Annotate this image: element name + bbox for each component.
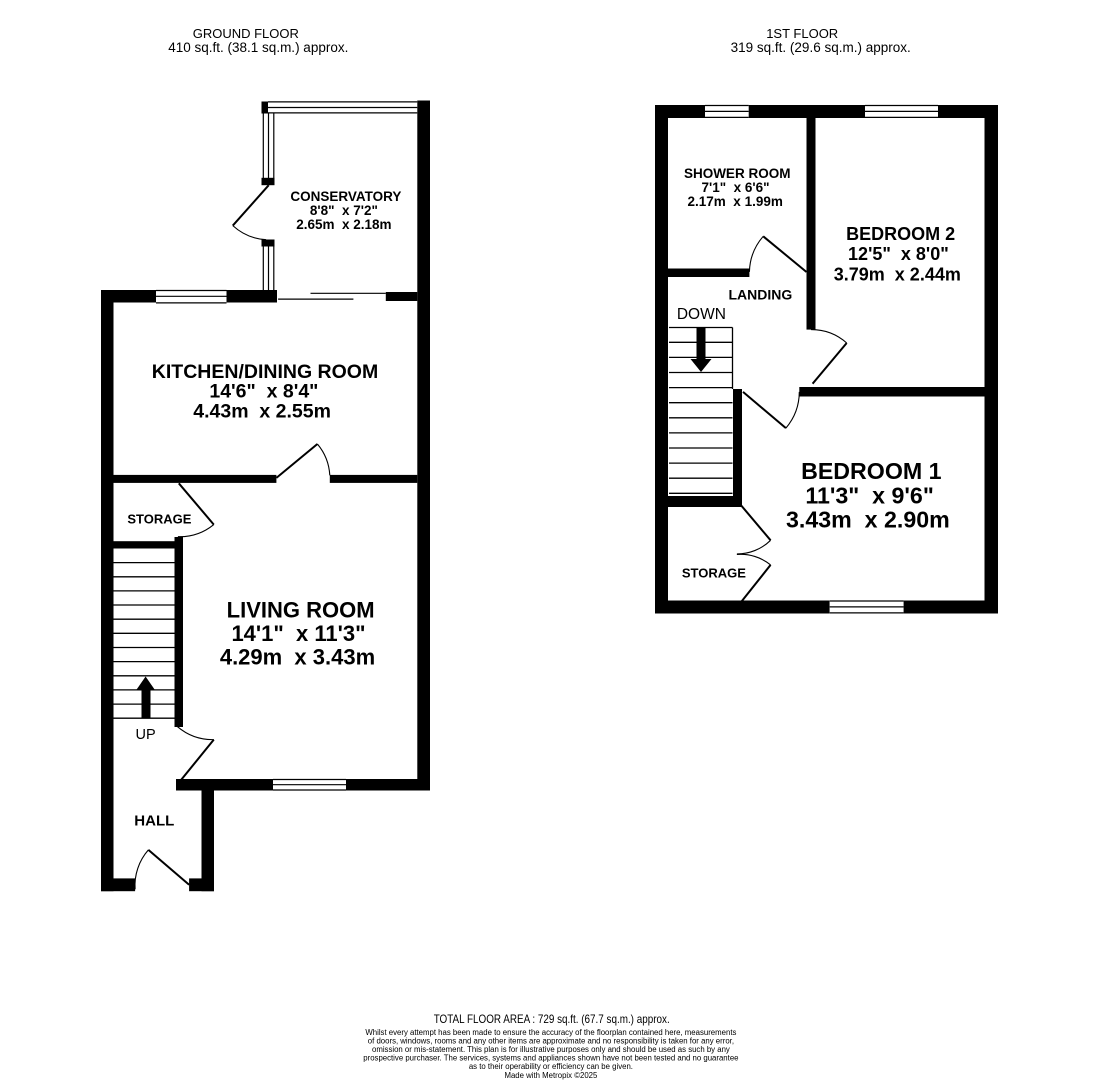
svg-text:2.17m x 1.99m: 2.17m x 1.99m — [688, 194, 783, 209]
svg-text:2.65m x 2.18m: 2.65m x 2.18m — [296, 217, 391, 232]
svg-text:12'5" x 8'0": 12'5" x 8'0" — [848, 244, 949, 264]
svg-text:410 sq.ft. (38.1 sq.m.) approx: 410 sq.ft. (38.1 sq.m.) approx. — [168, 40, 348, 55]
svg-text:TOTAL FLOOR AREA : 729 sq.ft.: TOTAL FLOOR AREA : 729 sq.ft. (67.7 sq.m… — [434, 1012, 670, 1026]
svg-text:BEDROOM 1: BEDROOM 1 — [801, 458, 942, 484]
svg-text:LIVING ROOM: LIVING ROOM — [227, 598, 375, 623]
svg-text:4.29m x 3.43m: 4.29m x 3.43m — [220, 645, 375, 670]
svg-text:HALL: HALL — [134, 813, 174, 830]
svg-text:8'8" x 7'2": 8'8" x 7'2" — [310, 203, 378, 218]
svg-text:11'3" x 9'6": 11'3" x 9'6" — [805, 482, 933, 508]
svg-text:Made with Metropix ©2025: Made with Metropix ©2025 — [504, 1071, 598, 1080]
svg-text:STORAGE: STORAGE — [127, 512, 191, 527]
svg-text:1ST FLOOR: 1ST FLOOR — [766, 26, 838, 41]
svg-text:3.43m x 2.90m: 3.43m x 2.90m — [786, 507, 950, 533]
svg-text:4.43m x 2.55m: 4.43m x 2.55m — [193, 401, 331, 423]
svg-text:3.79m x 2.44m: 3.79m x 2.44m — [834, 265, 961, 285]
svg-text:UP: UP — [136, 727, 156, 743]
svg-text:14'1" x 11'3": 14'1" x 11'3" — [231, 621, 365, 646]
svg-text:7'1" x 6'6": 7'1" x 6'6" — [701, 180, 769, 195]
svg-text:GROUND FLOOR: GROUND FLOOR — [193, 26, 299, 41]
svg-text:319 sq.ft. (29.6 sq.m.) approx: 319 sq.ft. (29.6 sq.m.) approx. — [731, 40, 911, 55]
svg-text:SHOWER ROOM: SHOWER ROOM — [684, 166, 791, 181]
svg-text:DOWN: DOWN — [677, 306, 726, 323]
svg-text:BEDROOM 2: BEDROOM 2 — [846, 224, 955, 244]
svg-text:STORAGE: STORAGE — [682, 565, 746, 580]
svg-text:LANDING: LANDING — [729, 287, 793, 303]
svg-text:CONSERVATORY: CONSERVATORY — [290, 189, 401, 204]
svg-text:14'6" x 8'4": 14'6" x 8'4" — [209, 380, 318, 402]
